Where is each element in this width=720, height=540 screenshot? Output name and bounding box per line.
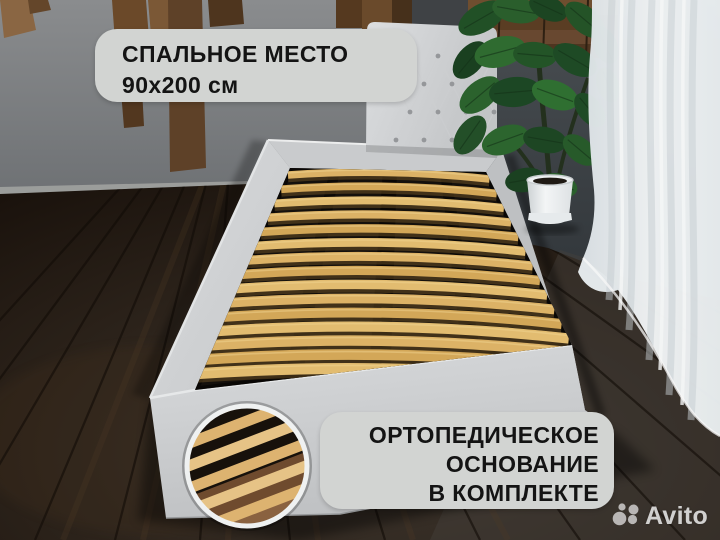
orthopedic-line1: ОРТОПЕДИЧЕСКОЕ — [320, 421, 599, 450]
avito-watermark: Avito — [610, 501, 708, 531]
sleeping-area-line1: СПАЛЬНОЕ МЕСТО — [122, 39, 417, 70]
avito-logo-icon — [610, 501, 642, 531]
sleeping-area-badge: СПАЛЬНОЕ МЕСТО 90x200 см — [95, 29, 417, 102]
product-photo: СПАЛЬНОЕ МЕСТО 90x200 см ОРТОПЕДИЧЕСКОЕ … — [0, 0, 720, 540]
orthopedic-base-badge: ОРТОПЕДИЧЕСКОЕ ОСНОВАНИЕ В КОМПЛЕКТЕ — [320, 412, 614, 509]
orthopedic-line3: В КОМПЛЕКТЕ — [320, 479, 599, 508]
orthopedic-line2: ОСНОВАНИЕ — [320, 450, 599, 479]
watermark-brand: Avito — [645, 501, 708, 531]
sleeping-area-line2: 90x200 см — [122, 70, 417, 101]
